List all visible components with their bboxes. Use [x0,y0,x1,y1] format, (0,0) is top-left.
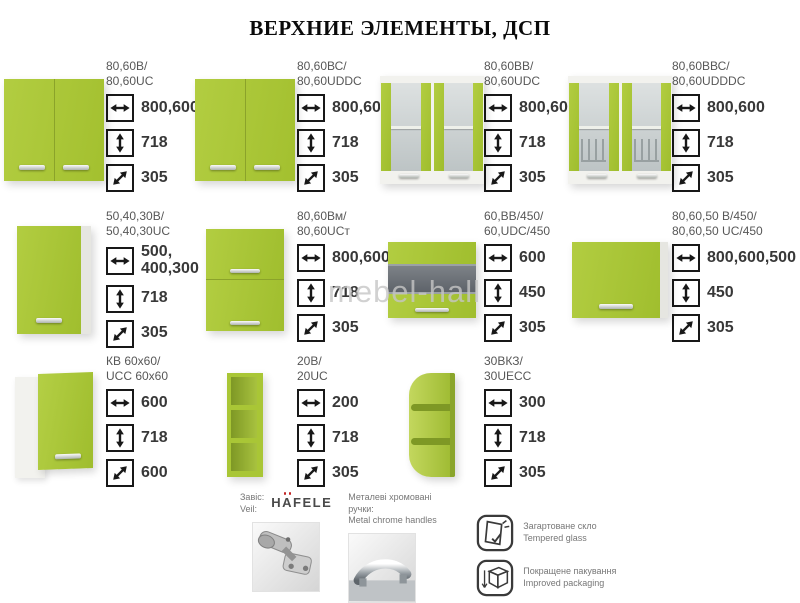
cabinet-image-glass-two-door-rack [568,76,672,184]
dimension-value: 718 [519,135,546,152]
dimension-value: 305 [519,320,546,337]
feature-improved-packaging: Покращене пакування Improved packaging [476,559,616,597]
improved-packaging-en: Improved packaging [523,578,604,588]
dimension-specs: 600450305 [484,244,566,342]
spec-row: 305 [484,164,566,192]
depth-icon [484,164,512,192]
spec-row: 600 [106,459,192,487]
spec-row: 800,600 [106,94,192,122]
product-code-line1: 50,40,30В/ [106,209,164,223]
cabinet-image-horizontal-glass [388,242,476,318]
spec-row: 450 [672,279,798,307]
product-card: 80,60ВВС/ 80,60UDDDC 800,600718305 [568,57,798,202]
spec-row: 600 [484,244,566,272]
dimension-specs: 800,600718305 [672,94,798,192]
spec-row: 305 [297,459,383,487]
product-code-line2: 80,60,50 UC/450 [672,224,763,238]
height-icon [484,279,512,307]
handles-label: Металеві хромовані ручки: Metal chrome h… [348,492,456,527]
height-icon [297,424,325,452]
product-card: 30ВКЗ/ 30UECC 300718305 [380,352,566,497]
dimension-specs: 800,600718305 [297,94,383,192]
cabinet-image-two-door [195,79,295,181]
hafele-logo: HAFELE [271,495,332,510]
catalog-page: ВЕРХНИЕ ЭЛЕМЕНТЫ, ДСП mebel-hall 80,60В/… [0,0,800,600]
product-code-line1: КВ 60х60/ [106,354,160,368]
width-icon [106,94,134,122]
dimension-value: 305 [141,325,168,342]
height-icon [297,129,325,157]
spec-row: 800,600 [297,94,383,122]
cabinet-image-area [193,207,297,352]
product-info: 80,60Вм/ 80,60UCт 800,600718305 [297,207,383,352]
product-card: 80,60ВВ/ 80,60UDC 800,600718305 [380,57,566,202]
footer: Завіс: Veil: HAFELE Металеві хр [240,492,616,603]
hinge-label: Завіс: Veil: [240,492,264,515]
product-code-line2: 80,60UDC [484,74,540,88]
depth-icon [484,314,512,342]
product-card: 80,60ВС/ 80,60UDDC 800,600718305 [193,57,383,202]
product-info: 80,60В/ 80,60UC 800,600718305 [106,57,192,202]
hinge-photo [252,522,320,592]
width-icon [484,389,512,417]
hinge-block: Завіс: Veil: HAFELE [240,492,332,603]
width-icon [297,389,325,417]
cabinet-image-flip-one [572,242,668,318]
depth-icon [672,314,700,342]
product-code-line1: 80,60Вм/ [297,209,346,223]
product-info: 60,ВВ/450/ 60,UDC/450 600450305 [484,207,566,352]
dimension-value: 305 [519,465,546,482]
product-code-line2: UCC 60х60 [106,369,168,383]
cabinet-image-area [380,207,484,352]
dimension-value: 718 [332,430,359,447]
dimension-specs: 600718600 [106,389,192,487]
height-icon [484,129,512,157]
width-icon [672,94,700,122]
dimension-value: 305 [141,170,168,187]
product-card: 50,40,30В/ 50,40,30UC 500, 400,300718305 [2,207,192,352]
product-code-line1: 30ВКЗ/ [484,354,523,368]
height-icon [106,285,134,313]
hinge-label-en: Veil: [240,504,257,514]
product-label: 80,60ВВС/ 80,60UDDDC [672,59,798,89]
product-label: 80,60,50 В/450/ 80,60,50 UC/450 [672,209,798,239]
spec-row: 600 [106,389,192,417]
dimension-specs: 500, 400,300718305 [106,244,192,348]
handle-photo [348,533,416,603]
product-label: 80,60В/ 80,60UC [106,59,192,89]
features-block: Загартоване скло Tempered glass Покращен… [476,492,616,603]
depth-icon [106,164,134,192]
dimension-value: 305 [332,320,359,337]
spec-row: 305 [484,314,566,342]
product-info: 50,40,30В/ 50,40,30UC 500, 400,300718305 [106,207,192,352]
spec-row: 718 [484,129,566,157]
product-label: 80,60ВВ/ 80,60UDC [484,59,566,89]
product-code-line2: 30UECC [484,369,531,383]
dimension-value: 305 [707,170,734,187]
product-code-line1: 80,60,50 В/450/ [672,209,757,223]
dimension-value: 718 [141,135,168,152]
dimension-value: 718 [332,135,359,152]
spec-row: 718 [106,285,192,313]
tempered-glass-icon [476,514,514,552]
depth-icon [297,164,325,192]
cabinet-image-area [380,57,484,202]
product-info: 80,60ВВС/ 80,60UDDDC 800,600718305 [672,57,798,202]
cabinet-image-corner-shelf [409,373,455,477]
spec-row: 500, 400,300 [106,244,192,278]
dimension-value: 600 [141,395,168,412]
handles-block: Металеві хромовані ручки: Metal chrome h… [348,492,456,603]
dimension-specs: 300718305 [484,389,566,487]
product-code-line1: 20В/ [297,354,322,368]
height-icon [672,129,700,157]
cabinet-image-two-door [4,79,104,181]
dimension-specs: 200718305 [297,389,383,487]
dimension-value: 800,600,500 [707,250,796,267]
spec-row: 718 [484,424,566,452]
dimension-specs: 800,600,500450305 [672,244,798,342]
dimension-specs: 800,600718305 [484,94,566,192]
hinge-label-uk: Завіс: [240,492,264,502]
product-code-line2: 80,60UC [106,74,153,88]
dimension-value: 450 [519,285,546,302]
product-info: 20В/ 20UC 200718305 [297,352,383,497]
cabinet-image-area [2,352,106,497]
cabinet-image-area [193,352,297,497]
cabinet-image-flip-two [206,229,284,331]
product-code-line2: 20UC [297,369,328,383]
dimension-value: 718 [332,285,359,302]
cabinet-image-open-shelf [227,373,263,477]
spec-row: 718 [297,279,383,307]
handles-label-uk: Металеві хромовані ручки: [348,492,431,514]
product-info: КВ 60х60/ UCC 60х60 600718600 [106,352,192,497]
product-code-line1: 80,60В/ [106,59,147,73]
spec-row: 800,600,500 [672,244,798,272]
cabinet-image-glass-two-door [380,76,484,184]
improved-packaging-icon [476,559,514,597]
dimension-value: 600 [519,250,546,267]
dimension-value: 305 [519,170,546,187]
depth-icon [297,459,325,487]
product-code-line2: 80,60UDDDC [672,74,745,88]
width-icon [297,244,325,272]
spec-row: 305 [672,164,798,192]
improved-packaging-uk: Покращене пакування [523,566,616,576]
spec-row: 718 [297,129,383,157]
cabinet-image-corner [15,372,93,478]
product-code-line1: 80,60ВВ/ [484,59,533,73]
product-card: КВ 60х60/ UCC 60х60 600718600 [2,352,192,497]
depth-icon [484,459,512,487]
spec-row: 718 [672,129,798,157]
product-info: 80,60ВС/ 80,60UDDC 800,600718305 [297,57,383,202]
spec-row: 300 [484,389,566,417]
page-title: ВЕРХНИЕ ЭЛЕМЕНТЫ, ДСП [0,16,800,41]
handles-label-en: Metal chrome handles [348,515,437,525]
width-icon [672,244,700,272]
depth-icon [672,164,700,192]
product-label: 50,40,30В/ 50,40,30UC [106,209,192,239]
product-code-line1: 80,60ВВС/ [672,59,730,73]
product-code-line2: 60,UDC/450 [484,224,550,238]
width-icon [484,244,512,272]
spec-row: 800,600 [484,94,566,122]
product-card: 80,60Вм/ 80,60UCт 800,600718305 [193,207,383,352]
feature-tempered-glass: Загартоване скло Tempered glass [476,514,616,552]
hinge-icon [253,523,319,591]
height-icon [672,279,700,307]
product-label: 60,ВВ/450/ 60,UDC/450 [484,209,566,239]
spec-row: 200 [297,389,383,417]
dimension-value: 500, 400,300 [141,244,199,278]
product-card: 20В/ 20UC 200718305 [193,352,383,497]
cabinet-image-area [193,57,297,202]
dimension-value: 200 [332,395,359,412]
spec-row: 305 [297,314,383,342]
dimension-value: 718 [141,290,168,307]
cabinet-image-area [568,207,672,352]
product-card: 80,60,50 В/450/ 80,60,50 UC/450 800,600,… [568,207,798,352]
product-label: КВ 60х60/ UCC 60х60 [106,354,192,384]
product-code-line1: 60,ВВ/450/ [484,209,543,223]
dimension-value: 800,600 [141,100,199,117]
feature-improved-packaging-label: Покращене пакування Improved packaging [523,566,616,589]
height-icon [297,279,325,307]
spec-row: 305 [106,320,192,348]
dimension-specs: 800,600718305 [106,94,192,192]
height-icon [106,129,134,157]
product-code-line2: 80,60UDDC [297,74,362,88]
product-card: 60,ВВ/450/ 60,UDC/450 600450305 [380,207,566,352]
width-icon [297,94,325,122]
dimension-value: 450 [707,285,734,302]
dimension-value: 718 [707,135,734,152]
product-card: 80,60В/ 80,60UC 800,600718305 [2,57,192,202]
spec-row: 800,600 [672,94,798,122]
cabinet-image-area [380,352,484,497]
product-code-line1: 80,60ВС/ [297,59,347,73]
spec-row: 718 [106,129,192,157]
product-label: 80,60ВС/ 80,60UDDC [297,59,383,89]
spec-row: 718 [297,424,383,452]
spec-row: 718 [106,424,192,452]
width-icon [106,247,134,275]
feature-tempered-glass-label: Загартоване скло Tempered glass [523,521,596,544]
tempered-glass-en: Tempered glass [523,533,587,543]
dimension-value: 600 [141,465,168,482]
depth-icon [106,320,134,348]
height-icon [106,424,134,452]
dimension-value: 305 [332,465,359,482]
dimension-value: 718 [519,430,546,447]
spec-row: 305 [297,164,383,192]
spec-row: 450 [484,279,566,307]
width-icon [484,94,512,122]
cabinet-image-single-door [17,226,91,334]
spec-row: 305 [484,459,566,487]
dimension-value: 305 [332,170,359,187]
product-info: 80,60ВВ/ 80,60UDC 800,600718305 [484,57,566,202]
cabinet-image-area [2,207,106,352]
product-info: 80,60,50 В/450/ 80,60,50 UC/450 800,600,… [672,207,798,352]
depth-icon [297,314,325,342]
chrome-handle-icon [349,534,415,602]
product-label: 20В/ 20UC [297,354,383,384]
dimension-value: 718 [141,430,168,447]
height-icon [484,424,512,452]
product-label: 80,60Вм/ 80,60UCт [297,209,383,239]
product-code-line2: 80,60UCт [297,224,350,238]
cabinet-image-area [2,57,106,202]
dimension-value: 800,600 [707,100,765,117]
tempered-glass-uk: Загартоване скло [523,521,596,531]
depth-icon [106,459,134,487]
width-icon [106,389,134,417]
dimension-specs: 800,600718305 [297,244,383,342]
spec-row: 305 [106,164,192,192]
spec-row: 305 [672,314,798,342]
dimension-value: 305 [707,320,734,337]
spec-row: 800,600 [297,244,383,272]
cabinet-image-area [568,57,672,202]
product-info: 30ВКЗ/ 30UECC 300718305 [484,352,566,497]
product-label: 30ВКЗ/ 30UECC [484,354,566,384]
product-code-line2: 50,40,30UC [106,224,170,238]
dimension-value: 300 [519,395,546,412]
